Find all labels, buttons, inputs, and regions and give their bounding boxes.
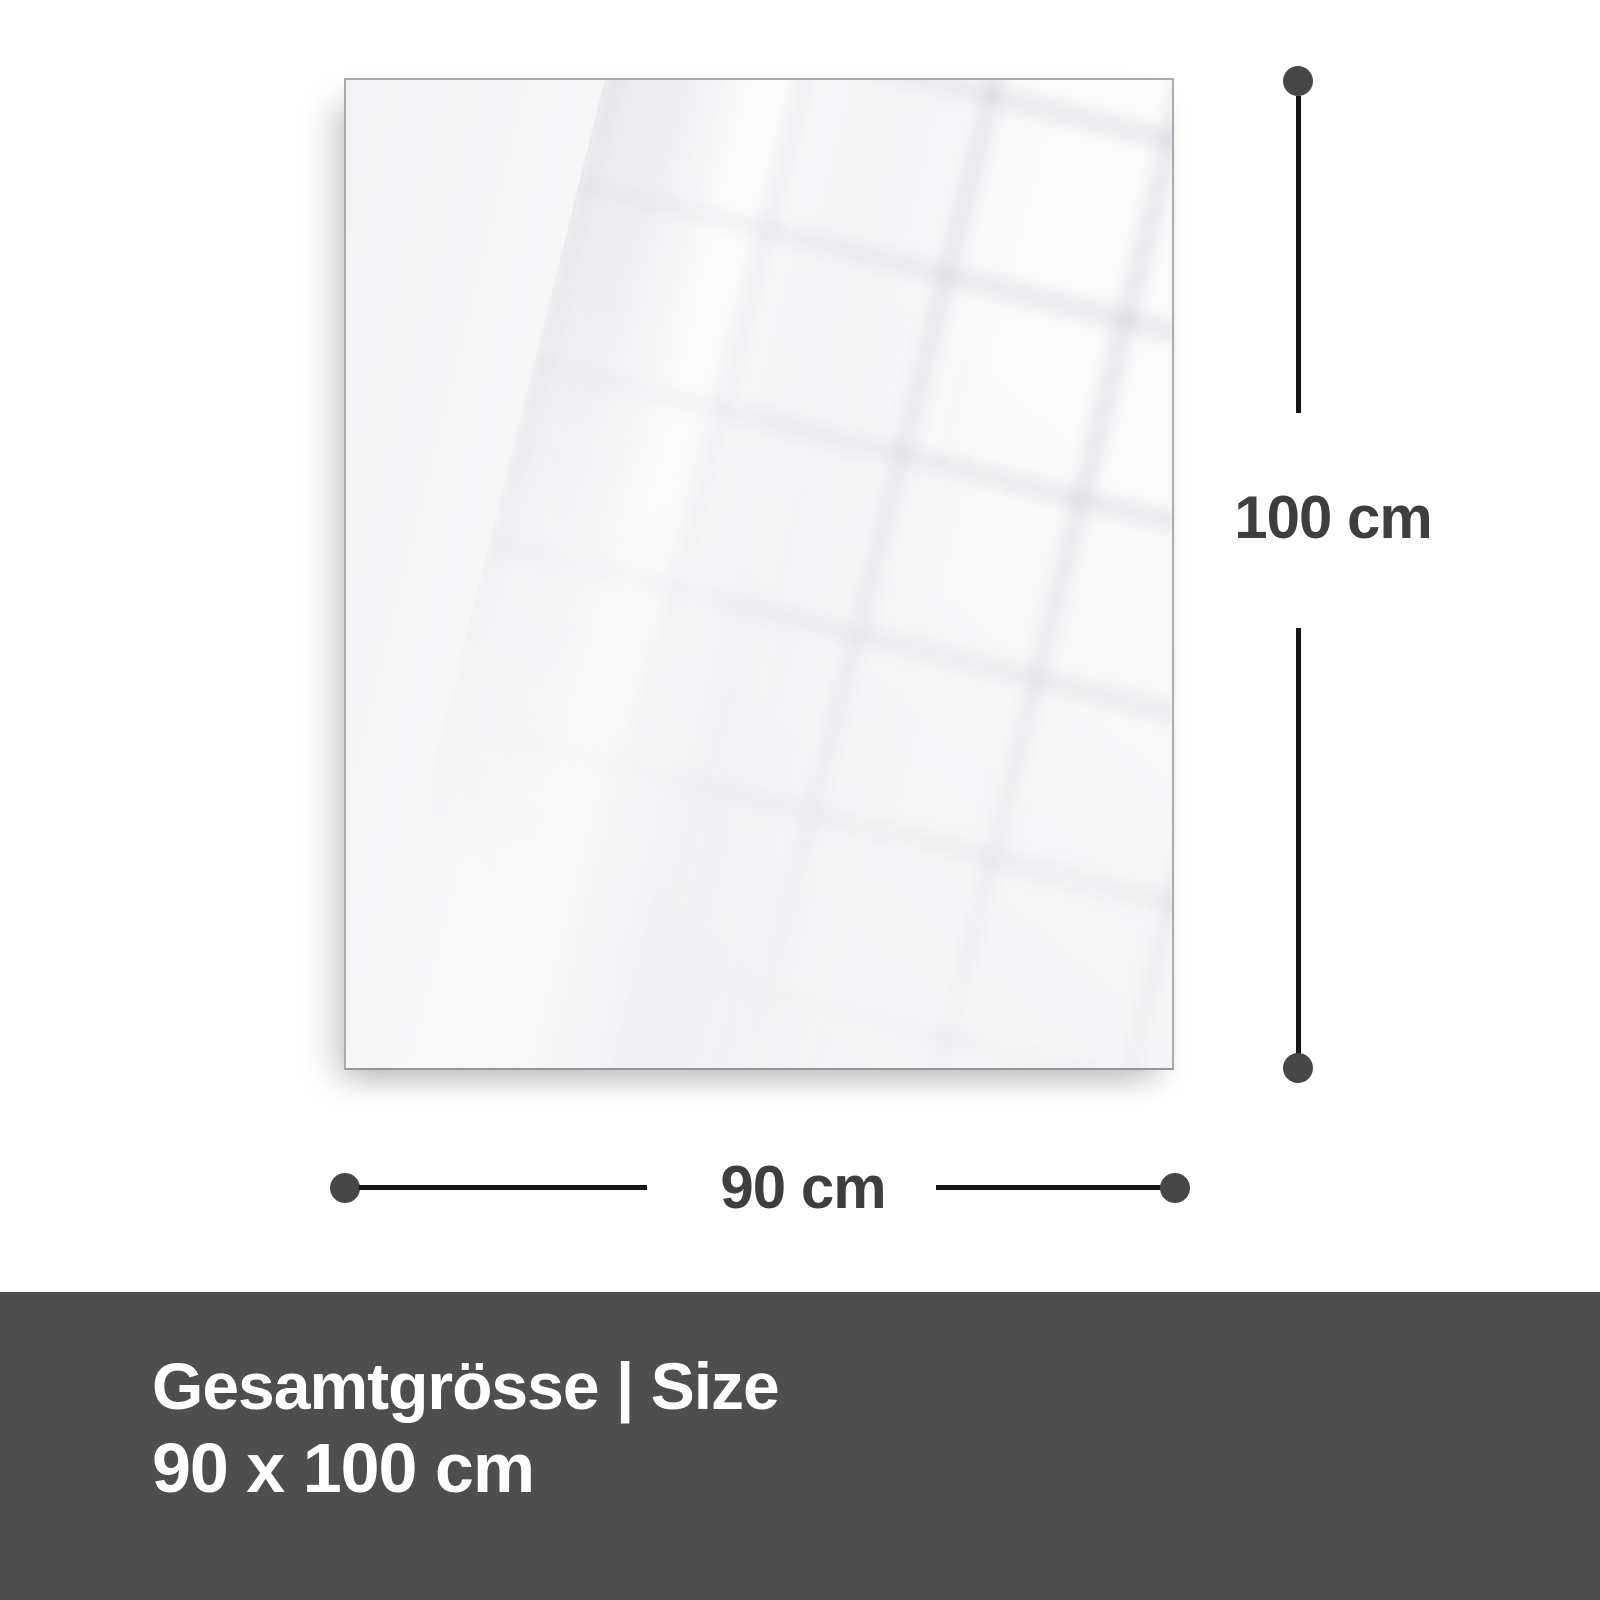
width-dimension-line-right <box>936 1185 1162 1190</box>
height-dimension-line-lower <box>1296 628 1301 1054</box>
height-dimension-top-dot <box>1283 66 1313 96</box>
glass-panel <box>344 78 1174 1070</box>
height-dimension-bottom-dot <box>1283 1053 1313 1083</box>
width-dimension-left-dot <box>330 1173 360 1203</box>
footer-bar: Gesamtgrösse | Size 90 x 100 cm <box>0 1292 1600 1600</box>
width-dimension-line-left <box>359 1185 647 1190</box>
footer-title: Gesamtgrösse | Size <box>152 1350 1600 1423</box>
width-label: 90 cm <box>653 1158 953 1218</box>
width-dimension-right-dot <box>1160 1173 1190 1203</box>
footer-size-value: 90 x 100 cm <box>152 1429 1600 1507</box>
product-size-diagram: 100 cm 90 cm Gesamtgrösse | Size 90 x 10… <box>0 0 1600 1600</box>
height-dimension-line-upper <box>1296 96 1301 413</box>
height-label: 100 cm <box>1183 488 1483 548</box>
